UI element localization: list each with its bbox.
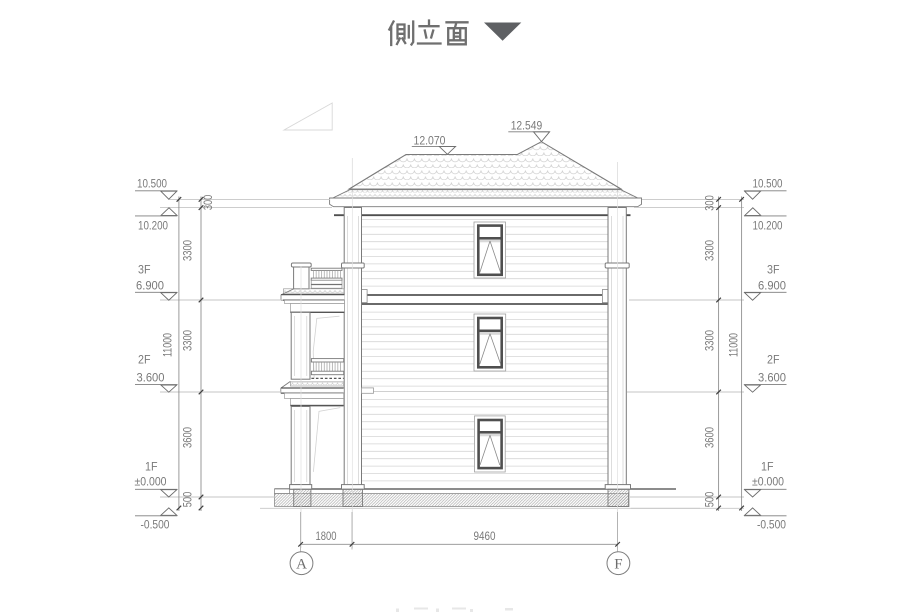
svg-text:10.500: 10.500 [753, 178, 783, 190]
svg-text:9460: 9460 [474, 531, 496, 543]
svg-text:A: A [296, 556, 307, 572]
svg-text:3F: 3F [767, 264, 780, 276]
svg-text:10.500: 10.500 [137, 178, 167, 190]
svg-text:1F: 1F [145, 461, 158, 473]
svg-text:3.600: 3.600 [137, 372, 165, 384]
svg-text:2F: 2F [138, 354, 151, 366]
svg-text:10.200: 10.200 [138, 220, 168, 232]
svg-text:3.600: 3.600 [758, 372, 786, 384]
svg-text:300: 300 [704, 195, 716, 211]
svg-text:-0.500: -0.500 [141, 519, 170, 531]
svg-text:6.900: 6.900 [758, 280, 786, 292]
svg-text:3600: 3600 [183, 427, 195, 448]
svg-text:12.070: 12.070 [414, 135, 446, 147]
svg-text:11000: 11000 [163, 333, 175, 357]
svg-text:±0.000: ±0.000 [135, 477, 167, 489]
svg-text:3300: 3300 [183, 240, 195, 261]
svg-text:±0.000: ±0.000 [752, 477, 784, 489]
svg-text:-0.500: -0.500 [757, 519, 786, 531]
svg-text:F: F [614, 556, 622, 572]
svg-text:12.549: 12.549 [511, 121, 543, 133]
svg-text:300: 300 [203, 195, 215, 211]
svg-text:11000: 11000 [729, 333, 741, 357]
svg-text:3300: 3300 [183, 330, 195, 351]
svg-text:500: 500 [704, 492, 716, 508]
svg-text:1800: 1800 [316, 531, 337, 543]
svg-text:500: 500 [183, 492, 195, 508]
svg-text:2F: 2F [767, 354, 780, 366]
svg-text:10.200: 10.200 [753, 220, 783, 232]
svg-text:3600: 3600 [704, 427, 716, 448]
svg-text:3300: 3300 [704, 330, 716, 351]
svg-text:3300: 3300 [704, 240, 716, 261]
svg-text:3F: 3F [138, 264, 151, 276]
svg-text:1F: 1F [761, 461, 774, 473]
svg-text:6.900: 6.900 [136, 280, 164, 292]
